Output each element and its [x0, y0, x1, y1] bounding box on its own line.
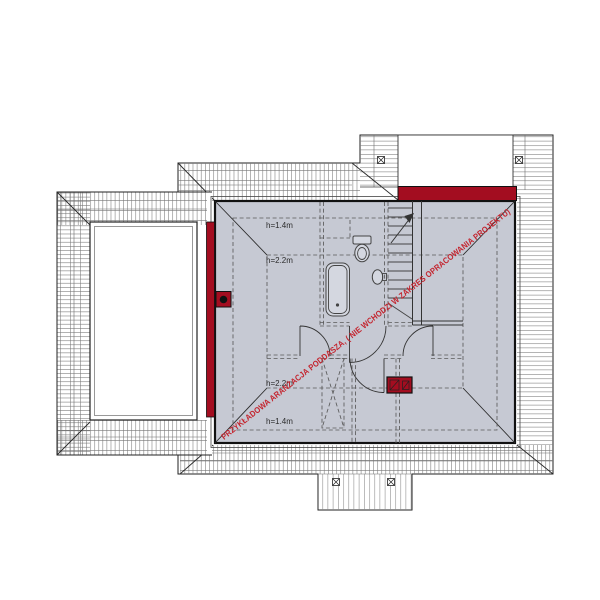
roof-vent-icon: [388, 479, 395, 486]
roof-vent-icon: [378, 157, 385, 164]
garage-opening: [90, 222, 197, 420]
bathtub: [326, 263, 350, 316]
garage-roof-left-band: [57, 192, 90, 455]
dormer-roof-panel: [398, 135, 513, 187]
wall-vent-chimney: [216, 292, 231, 308]
floor-plan-drawing: h=1.4m h=2.2m h=2.2m h=1.4m: [0, 0, 600, 600]
attic-floor-plan-page: h=1.4m h=2.2m h=2.2m h=1.4m: [0, 0, 600, 600]
roof-plane-bottom: [180, 445, 553, 474]
left-gable-wall: [207, 222, 215, 417]
dormer-front-wall: [398, 187, 517, 201]
roof-vent-icon: [333, 479, 340, 486]
toilet: [353, 236, 371, 262]
height-label-bottom-outer: h=1.4m: [266, 417, 293, 426]
roof-vent-icon: [516, 157, 523, 164]
garage-roof: [57, 192, 212, 455]
chimney-block: [387, 377, 412, 393]
height-label-top-inner: h=2.2m: [266, 256, 293, 265]
height-label-top-outer: h=1.4m: [266, 221, 293, 230]
garage-roof-bottom-band: [57, 420, 207, 455]
roof-plane-right: [517, 190, 553, 445]
